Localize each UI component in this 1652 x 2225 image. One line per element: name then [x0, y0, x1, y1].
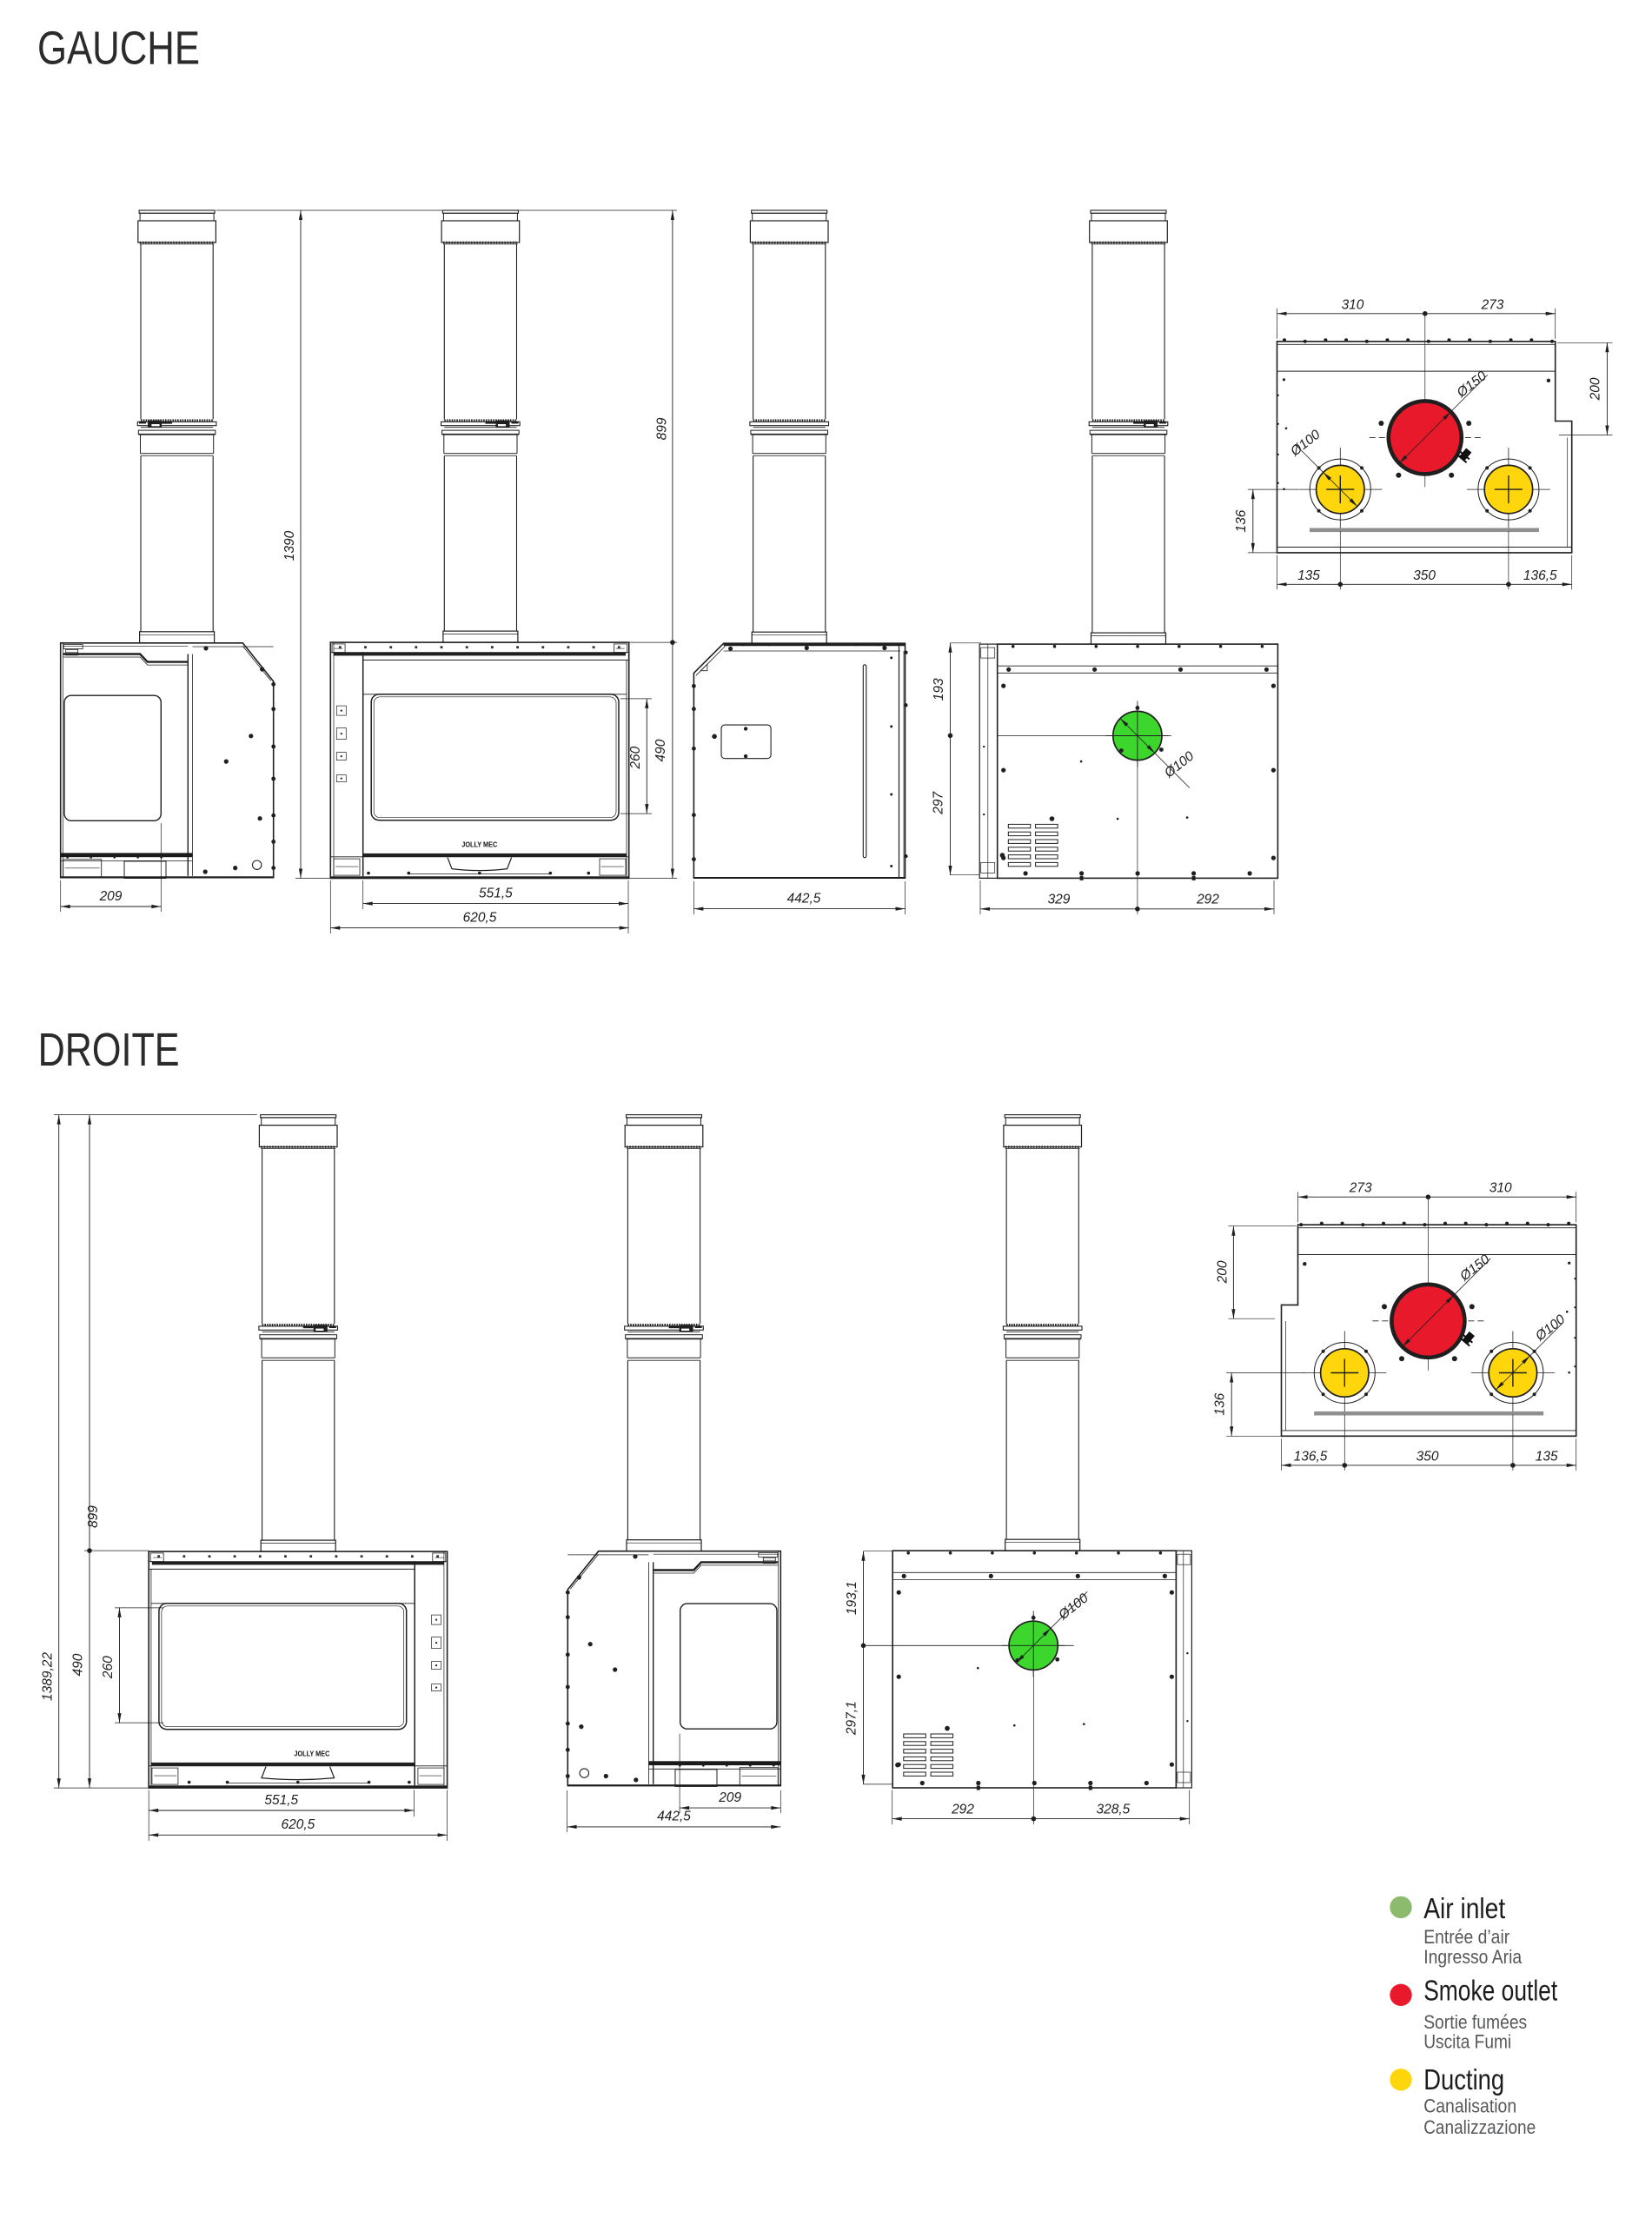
svg-text:Smoke outlet: Smoke outlet — [1423, 1975, 1557, 2007]
svg-text:292: 292 — [951, 1802, 974, 1817]
svg-text:551,5: 551,5 — [264, 1793, 298, 1808]
svg-text:193,1: 193,1 — [845, 1581, 859, 1615]
svg-text:Ducting: Ducting — [1423, 2063, 1504, 2095]
svg-text:DROITE: DROITE — [38, 1024, 180, 1076]
svg-text:490: 490 — [654, 739, 668, 761]
svg-text:209: 209 — [718, 1790, 741, 1805]
svg-text:209: 209 — [99, 889, 123, 904]
svg-text:620,5: 620,5 — [463, 910, 497, 925]
svg-text:310: 310 — [1489, 1181, 1512, 1196]
svg-text:442,5: 442,5 — [787, 891, 821, 906]
svg-text:JOLLY MEC: JOLLY MEC — [461, 840, 497, 848]
svg-text:620,5: 620,5 — [282, 1817, 315, 1832]
svg-text:Canalisation: Canalisation — [1423, 2095, 1516, 2117]
svg-text:329: 329 — [1048, 893, 1071, 907]
svg-text:350: 350 — [1416, 1449, 1439, 1464]
svg-text:193: 193 — [932, 678, 946, 701]
svg-text:135: 135 — [1297, 568, 1320, 583]
svg-text:200: 200 — [1589, 377, 1603, 401]
svg-text:297: 297 — [932, 790, 946, 814]
svg-text:GAUCHE: GAUCHE — [37, 23, 200, 75]
svg-text:297,1: 297,1 — [845, 1701, 859, 1736]
svg-text:551,5: 551,5 — [479, 886, 513, 900]
svg-text:328,5: 328,5 — [1097, 1802, 1131, 1817]
svg-text:350: 350 — [1413, 568, 1436, 583]
svg-text:899: 899 — [654, 417, 669, 440]
svg-text:136,5: 136,5 — [1523, 568, 1557, 583]
svg-text:135: 135 — [1536, 1449, 1558, 1464]
svg-text:1389,22: 1389,22 — [41, 1652, 56, 1701]
svg-text:Air inlet: Air inlet — [1423, 1892, 1505, 1924]
svg-text:490: 490 — [71, 1653, 86, 1676]
svg-text:Canalizzazione: Canalizzazione — [1423, 2116, 1536, 2138]
svg-text:260: 260 — [101, 1656, 116, 1679]
svg-text:136,5: 136,5 — [1294, 1449, 1328, 1464]
svg-text:310: 310 — [1342, 297, 1364, 312]
svg-text:899: 899 — [86, 1505, 101, 1528]
svg-text:1390: 1390 — [282, 530, 297, 561]
svg-text:136: 136 — [1213, 1392, 1228, 1415]
svg-text:260: 260 — [628, 746, 643, 769]
svg-text:Entrée d’air: Entrée d’air — [1423, 1926, 1509, 1948]
svg-text:442,5: 442,5 — [657, 1810, 691, 1824]
svg-text:Sortie fumées: Sortie fumées — [1423, 2011, 1527, 2033]
svg-text:273: 273 — [1349, 1181, 1372, 1196]
svg-text:273: 273 — [1481, 297, 1504, 312]
svg-text:Uscita Fumi: Uscita Fumi — [1423, 2030, 1511, 2052]
svg-text:292: 292 — [1196, 893, 1219, 907]
svg-text:136: 136 — [1234, 509, 1249, 532]
svg-text:JOLLY MEC: JOLLY MEC — [294, 1749, 329, 1757]
svg-text:Ingresso Aria: Ingresso Aria — [1423, 1946, 1522, 1968]
svg-text:200: 200 — [1216, 1260, 1231, 1284]
